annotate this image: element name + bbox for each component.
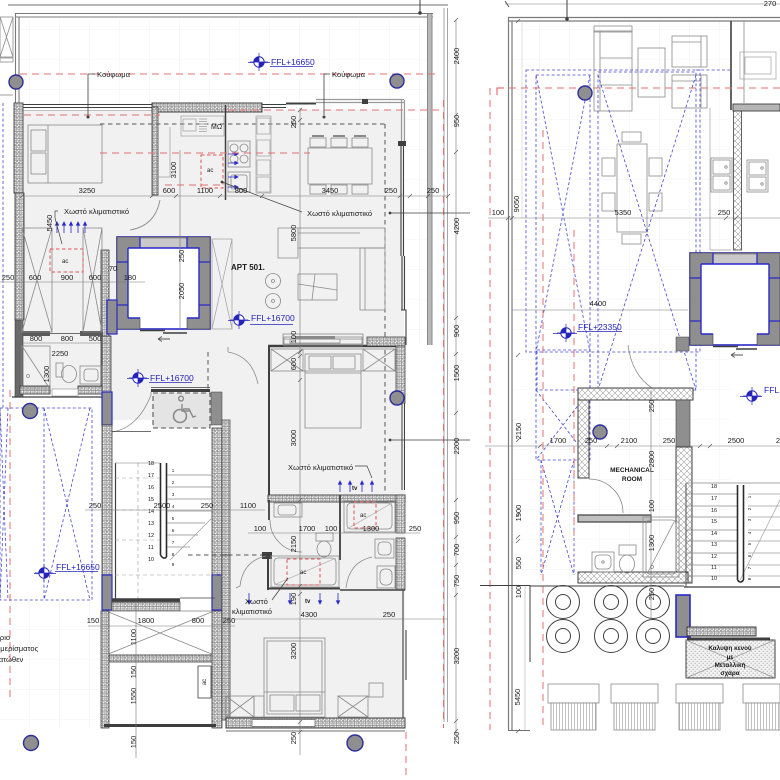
svg-text:1500: 1500 — [452, 365, 461, 382]
svg-text:250: 250 — [89, 501, 102, 510]
svg-text:900: 900 — [61, 273, 74, 282]
svg-text:2250: 2250 — [52, 349, 69, 358]
svg-text:250: 250 — [383, 610, 396, 619]
svg-text:tv: tv — [305, 599, 311, 605]
svg-text:70: 70 — [109, 264, 117, 273]
svg-text:Κούφωμα: Κούφωμα — [97, 70, 131, 79]
svg-text:250: 250 — [427, 186, 440, 195]
svg-text:250: 250 — [718, 208, 731, 217]
svg-text:250: 250 — [385, 186, 398, 195]
svg-text:600: 600 — [163, 186, 176, 195]
svg-text:250: 250 — [647, 588, 656, 601]
svg-text:250: 250 — [585, 436, 598, 445]
svg-text:κατώθεν: κατώθεν — [0, 655, 24, 664]
svg-text:250: 250 — [289, 116, 298, 129]
svg-text:750: 750 — [452, 575, 461, 588]
svg-text:1800: 1800 — [138, 616, 155, 625]
svg-text:10: 10 — [148, 557, 154, 563]
svg-text:Χωστό κλιματιστικό: Χωστό κλιματιστικό — [307, 209, 372, 218]
svg-text:4300: 4300 — [301, 610, 318, 619]
svg-text:100: 100 — [647, 500, 656, 513]
svg-text:1900: 1900 — [514, 505, 523, 522]
svg-text:250: 250 — [223, 616, 236, 625]
svg-text:κλιματιστικό: κλιματιστικό — [232, 607, 272, 616]
svg-text:180: 180 — [124, 273, 137, 282]
svg-text:16: 16 — [711, 508, 717, 514]
svg-text:800: 800 — [192, 616, 205, 625]
svg-text:5800: 5800 — [289, 225, 298, 242]
svg-text:18: 18 — [148, 461, 154, 467]
svg-text:ac: ac — [202, 679, 208, 685]
svg-text:800: 800 — [61, 334, 74, 343]
svg-text:100: 100 — [514, 586, 523, 599]
svg-text:tv: tv — [352, 486, 358, 492]
svg-text:2050: 2050 — [177, 283, 186, 300]
svg-text:270: 270 — [764, 0, 777, 8]
svg-text:250: 250 — [177, 250, 186, 263]
svg-text:11: 11 — [711, 565, 717, 571]
svg-text:ac: ac — [62, 259, 68, 265]
svg-text:4200: 4200 — [452, 218, 461, 235]
svg-text:17: 17 — [148, 473, 154, 479]
svg-text:800: 800 — [30, 334, 43, 343]
svg-text:13: 13 — [148, 521, 154, 527]
svg-text:5450: 5450 — [513, 689, 522, 706]
svg-text:250: 250 — [289, 732, 298, 745]
svg-text:3200: 3200 — [289, 643, 298, 660]
svg-text:FFL: FFL — [764, 385, 779, 395]
svg-text:1100: 1100 — [197, 186, 213, 195]
svg-text:APT 501.: APT 501. — [231, 263, 265, 272]
svg-text:100: 100 — [325, 524, 338, 533]
svg-text:σχάρα: σχάρα — [720, 670, 739, 677]
svg-text:2150: 2150 — [289, 536, 298, 553]
svg-text:2200: 2200 — [452, 438, 461, 455]
svg-text:11: 11 — [148, 545, 154, 551]
svg-text:1300: 1300 — [42, 366, 51, 383]
svg-text:600: 600 — [29, 273, 42, 282]
svg-text:3200: 3200 — [452, 648, 461, 665]
svg-text:FFL+23350: FFL+23350 — [578, 322, 622, 332]
svg-text:13: 13 — [711, 542, 717, 548]
svg-text:FFL+16700: FFL+16700 — [150, 373, 194, 383]
svg-text:150: 150 — [129, 666, 138, 679]
svg-text:18: 18 — [711, 484, 717, 490]
svg-text:10: 10 — [711, 576, 717, 582]
svg-text:250: 250 — [452, 732, 461, 745]
svg-text:100: 100 — [254, 524, 267, 533]
svg-text:ac: ac — [207, 168, 213, 174]
svg-text:600: 600 — [89, 273, 102, 282]
svg-text:2100: 2100 — [621, 436, 638, 445]
svg-text:Μεταλλική: Μεταλλική — [715, 661, 746, 669]
svg-text:12: 12 — [711, 554, 717, 560]
svg-text:3250: 3250 — [79, 186, 96, 195]
svg-text:2500: 2500 — [728, 436, 745, 445]
svg-text:1550: 1550 — [129, 688, 138, 705]
svg-text:3000: 3000 — [289, 430, 298, 447]
svg-text:250: 250 — [663, 436, 676, 445]
svg-text:15: 15 — [711, 519, 717, 525]
svg-text:2800: 2800 — [647, 451, 656, 468]
svg-text:2500: 2500 — [154, 501, 171, 510]
svg-text:2: 2 — [776, 436, 780, 445]
svg-text:Χωστό: Χωστό — [245, 597, 268, 606]
svg-text:3450: 3450 — [322, 186, 339, 195]
svg-text:2150: 2150 — [514, 423, 523, 440]
svg-text:5350: 5350 — [615, 208, 632, 217]
svg-text:διαμερίσματος: διαμερίσματος — [0, 644, 39, 653]
svg-text:FFL+16700: FFL+16700 — [251, 313, 295, 323]
svg-text:16: 16 — [148, 485, 154, 491]
svg-text:Όριο: Όριο — [0, 633, 10, 642]
svg-text:250: 250 — [647, 400, 656, 413]
svg-text:FFL+16650: FFL+16650 — [271, 57, 315, 67]
svg-text:250: 250 — [2, 273, 15, 282]
svg-text:950: 950 — [452, 512, 461, 525]
svg-text:550: 550 — [514, 557, 523, 570]
svg-text:500: 500 — [89, 334, 102, 343]
svg-text:250: 250 — [201, 501, 214, 510]
svg-text:5450: 5450 — [45, 215, 54, 232]
svg-text:1300: 1300 — [647, 535, 656, 552]
svg-text:950: 950 — [452, 115, 461, 128]
svg-text:ac: ac — [300, 570, 306, 576]
svg-text:17: 17 — [711, 496, 717, 502]
svg-text:1700: 1700 — [550, 436, 567, 445]
svg-text:ROOM: ROOM — [622, 476, 642, 483]
svg-text:ac: ac — [360, 513, 366, 519]
svg-text:14: 14 — [711, 531, 717, 537]
svg-text:150: 150 — [129, 736, 138, 749]
svg-text:600: 600 — [289, 358, 298, 371]
svg-text:MΩ: MΩ — [211, 124, 222, 131]
svg-text:100: 100 — [492, 208, 505, 217]
svg-text:2400: 2400 — [452, 48, 461, 65]
svg-text:4400: 4400 — [590, 299, 607, 308]
svg-text:1300: 1300 — [363, 524, 380, 533]
svg-text:Καλυψη κενού: Καλυψη κενού — [708, 644, 752, 652]
svg-text:Χωστό κλιματιστικό: Χωστό κλιματιστικό — [288, 463, 353, 472]
svg-text:12: 12 — [148, 533, 154, 539]
svg-text:100: 100 — [289, 331, 298, 344]
svg-text:Χωστό κλιματιστικό: Χωστό κλιματιστικό — [64, 207, 129, 216]
svg-text:Κούφωμα: Κούφωμα — [332, 70, 366, 79]
svg-text:190: 190 — [289, 593, 298, 606]
svg-text:3100: 3100 — [169, 162, 178, 179]
svg-text:1700: 1700 — [299, 524, 316, 533]
svg-text:1100: 1100 — [129, 629, 138, 645]
svg-text:150: 150 — [87, 616, 100, 625]
svg-text:250: 250 — [409, 524, 422, 533]
svg-text:1100: 1100 — [240, 501, 256, 510]
svg-text:700: 700 — [452, 544, 461, 557]
svg-text:9050: 9050 — [512, 196, 521, 213]
svg-text:FFL+16650: FFL+16650 — [56, 562, 100, 572]
svg-text:800: 800 — [235, 186, 248, 195]
svg-text:με: με — [727, 654, 734, 661]
svg-text:900: 900 — [452, 325, 461, 338]
